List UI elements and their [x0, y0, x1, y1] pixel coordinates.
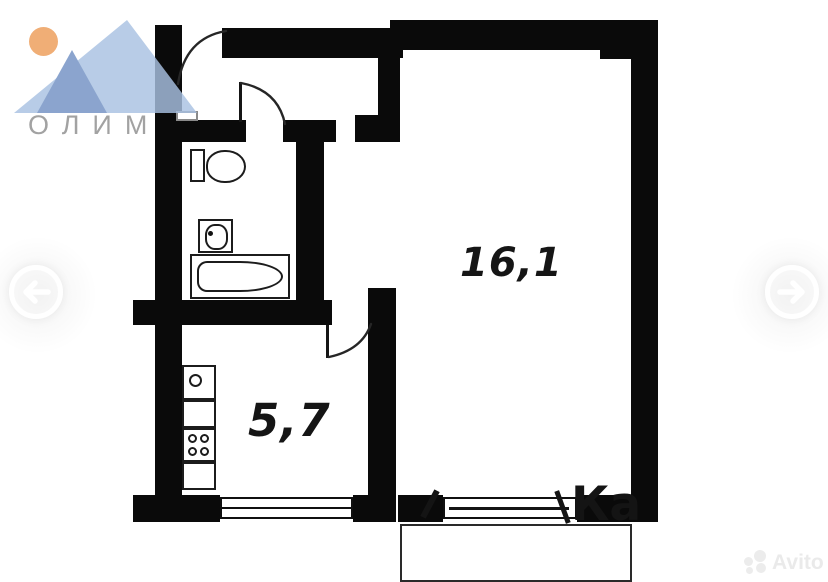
kitchen-sink-drain: [189, 374, 202, 387]
living-room-area-label: 16,1: [460, 240, 563, 286]
wash-basin-bowl: [205, 224, 228, 250]
avito-logo-icon: [756, 563, 766, 573]
watermark-text-fragment: Ка: [571, 477, 641, 532]
arrow-right-icon: [773, 273, 811, 311]
avito-watermark-text: Avito: [772, 551, 824, 575]
avito-logo-icon: [744, 557, 753, 566]
stove: [182, 428, 216, 462]
prev-photo-button[interactable]: [9, 265, 63, 319]
toilet-bowl: [206, 150, 246, 183]
stove-burner: [188, 434, 197, 443]
stove-burner: [200, 447, 209, 456]
logo-mountains-icon: [0, 0, 220, 120]
stove-burner: [188, 447, 197, 456]
bathtub-inner: [197, 261, 283, 292]
next-photo-button[interactable]: [765, 265, 819, 319]
avito-watermark: Avito: [744, 550, 828, 576]
wash-basin-faucet-dot: [208, 231, 213, 236]
mountain-back: [14, 20, 197, 113]
cabinet: [182, 462, 216, 490]
avito-logo-icon: [754, 550, 766, 562]
bathroom-door-swing-arc: [241, 83, 285, 124]
avito-logo-icon: [746, 567, 753, 574]
photo-viewer-page: { "page": { "background_color": "#ffffff…: [0, 0, 828, 577]
kitchen-area-label: 5,7: [248, 394, 331, 447]
stove-burner: [200, 434, 209, 443]
arrow-left-icon: [17, 273, 55, 311]
kitchen-door-swing-arc: [329, 324, 371, 357]
toilet-tank: [190, 149, 205, 182]
countertop: [182, 400, 216, 428]
